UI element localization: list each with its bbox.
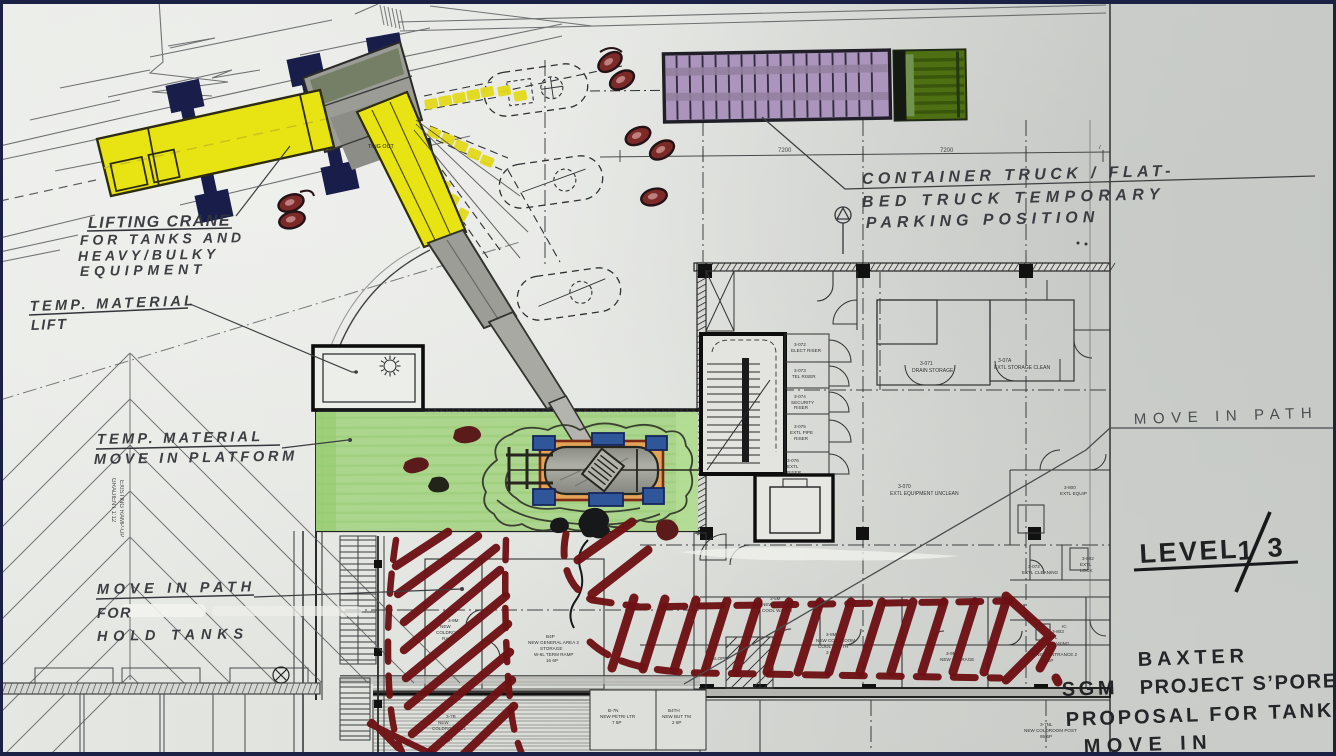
svg-text:NEW PETRI LTR: NEW PETRI LTR xyxy=(600,714,636,719)
svg-text:EXTL EQUIPMENT UNCLEAN: EXTL EQUIPMENT UNCLEAN xyxy=(890,491,959,497)
svg-text:2 5P: 2 5P xyxy=(672,720,681,725)
svg-text:TEL RISER: TEL RISER xyxy=(792,374,816,379)
svg-text:16 6P: 16 6P xyxy=(546,658,558,663)
svg-text:EQUIPMENT: EQUIPMENT xyxy=(80,261,207,279)
svg-text:STORAGE: STORAGE xyxy=(540,646,562,651)
svg-text:IC: IC xyxy=(1062,624,1067,629)
svg-text:3-073: 3-073 xyxy=(794,368,806,373)
svg-text:7200: 7200 xyxy=(778,148,792,154)
svg-text:3-803: 3-803 xyxy=(1052,629,1064,634)
svg-text:EXTL STORAGE CLEAN: EXTL STORAGE CLEAN xyxy=(994,365,1051,371)
svg-text:3-800: 3-800 xyxy=(1064,485,1076,490)
svg-text:3-075: 3-075 xyxy=(794,424,806,429)
svg-text:W-6L TERM RAMP: W-6L TERM RAMP xyxy=(534,652,573,657)
svg-text:FOR: FOR xyxy=(97,605,132,622)
svg-text:EXTL CLEANING: EXTL CLEANING xyxy=(1022,570,1059,575)
svg-text:95 6P: 95 6P xyxy=(1040,734,1052,739)
svg-text:3-9M: 3-9M xyxy=(448,618,459,623)
svg-text:3-07A: 3-07A xyxy=(998,358,1012,364)
svg-text:DRAIN STORAGE: DRAIN STORAGE xyxy=(912,368,954,374)
svg-text:B4P: B4P xyxy=(546,634,555,639)
svg-text:ELECT RISER: ELECT RISER xyxy=(791,348,822,353)
svg-text:NEW BUT TM: NEW BUT TM xyxy=(662,714,691,719)
svg-text:3-076: 3-076 xyxy=(787,458,799,463)
svg-text:LOCK: LOCK xyxy=(1080,568,1093,573)
svg-text:BAXTER: BAXTER xyxy=(1137,645,1249,671)
svg-text:3-070: 3-070 xyxy=(898,484,911,490)
svg-text:NEW: NEW xyxy=(440,624,451,629)
svg-text:RISER: RISER xyxy=(794,405,809,410)
svg-text:3-7NL: 3-7NL xyxy=(1040,722,1053,727)
svg-text:3-071: 3-071 xyxy=(920,361,933,367)
svg-text:NEW GENERAL AREA 2: NEW GENERAL AREA 2 xyxy=(528,640,579,645)
svg-text:3-072: 3-072 xyxy=(1028,564,1040,569)
svg-text:HOLD TANKS: HOLD TANKS xyxy=(97,626,249,645)
svg-text:7 5P: 7 5P xyxy=(612,720,621,725)
svg-text:LEVEL: LEVEL xyxy=(1139,534,1240,569)
svg-text:EXTL PIPE: EXTL PIPE xyxy=(790,430,813,435)
svg-text:3-072: 3-072 xyxy=(794,342,806,347)
svg-text:RISER: RISER xyxy=(794,436,809,441)
svg-text:3-074: 3-074 xyxy=(794,394,806,399)
svg-text:B-7N: B-7N xyxy=(608,708,618,713)
svg-text:SGM: SGM xyxy=(1061,677,1118,701)
svg-text:3-802: 3-802 xyxy=(1082,556,1094,561)
svg-text:3: 3 xyxy=(1267,532,1284,563)
svg-text:EXTL EQUIP: EXTL EQUIP xyxy=(1060,491,1087,496)
svg-text:EXTL: EXTL xyxy=(1080,562,1092,567)
svg-text:LIFT: LIFT xyxy=(31,317,68,334)
svg-text:3-8M: 3-8M xyxy=(826,632,837,637)
svg-text:7200: 7200 xyxy=(940,148,954,154)
svg-text:TING OUT: TING OUT xyxy=(368,144,394,150)
svg-text:FOR TANKS AND: FOR TANKS AND xyxy=(80,229,245,248)
svg-text:EXTL: EXTL xyxy=(787,464,799,469)
svg-text:B4TH: B4TH xyxy=(668,708,680,713)
svg-text:GRADIENT 1:12: GRADIENT 1:12 xyxy=(110,478,116,523)
svg-text:3-5M: 3-5M xyxy=(770,596,781,601)
svg-text:EXISTING RAMP-UP: EXISTING RAMP-UP xyxy=(118,480,124,537)
